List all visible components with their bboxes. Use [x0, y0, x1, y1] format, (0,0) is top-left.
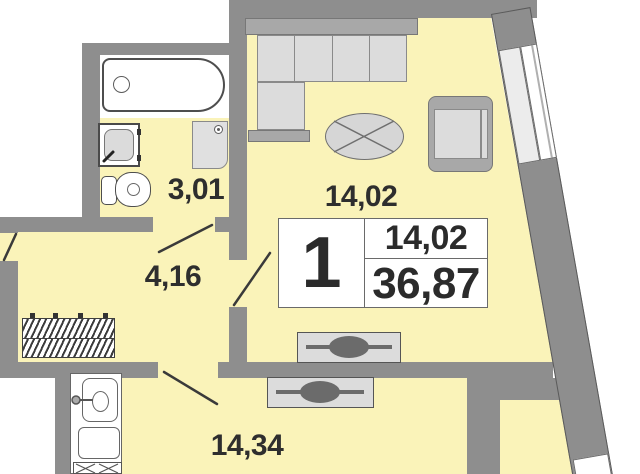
wardrobe-hatch-row	[23, 319, 114, 339]
balcony-window-icon	[573, 453, 616, 474]
wardrobe-hook-icon	[30, 313, 35, 318]
wardrobe-hangers-icon	[22, 318, 115, 358]
rooms-count: 1	[279, 219, 365, 307]
sofa-cushion	[370, 36, 406, 81]
wardrobe-hatch-row	[23, 339, 114, 358]
wall	[55, 373, 70, 474]
wall	[218, 362, 553, 378]
sofa-backrest-icon	[245, 18, 418, 35]
living-area-value: 14,02	[365, 219, 487, 259]
apartment-summary-box: 1 14,02 36,87	[278, 218, 488, 308]
armchair-backrest	[481, 109, 488, 159]
wall	[500, 378, 560, 400]
wardrobe-hook-icon	[103, 313, 108, 318]
total-area-value: 36,87	[365, 259, 487, 309]
bathtub-drain-icon	[113, 76, 130, 93]
wall	[82, 43, 232, 55]
sofa-armrest-icon	[248, 130, 310, 142]
entry-door-opening	[0, 233, 18, 261]
kitchen-door-opening	[158, 362, 218, 378]
kitchen-cabinet-icon	[78, 427, 120, 459]
living-room-area-label: 14,02	[325, 180, 398, 214]
hallway-area-label: 4,16	[145, 260, 201, 294]
living-room-door-opening	[229, 260, 247, 307]
wall	[215, 217, 247, 232]
kitchen-sink-bowl-icon	[92, 391, 109, 412]
washbasin-bracket-icon	[137, 129, 141, 135]
corner-sofa-icon	[257, 35, 407, 82]
washbasin-bowl-icon	[104, 129, 134, 161]
armchair-seat	[434, 109, 481, 159]
kitchen-area-label: 14,34	[211, 429, 284, 463]
bathroom-area-label: 3,01	[168, 173, 224, 207]
sofa-cushion	[333, 36, 370, 81]
wall	[229, 307, 247, 363]
vent-oval-icon	[300, 381, 340, 403]
toilet-drain-icon	[127, 183, 140, 196]
wall	[467, 378, 500, 474]
wall	[0, 217, 153, 232]
washing-machine-valve-dot-icon	[217, 128, 220, 131]
sofa-cushion	[258, 36, 295, 81]
floor-plan: 3,01 14,02 4,16 14,34 1 14,02 36,87	[0, 0, 640, 474]
wall	[0, 261, 18, 373]
vent-oval-icon	[329, 336, 369, 358]
sofa-corner-cushion	[257, 82, 305, 130]
stove-icon	[73, 462, 122, 474]
wall	[0, 217, 18, 233]
washbasin-bracket-icon	[137, 155, 141, 161]
wardrobe-hook-icon	[78, 313, 83, 318]
bathroom-door-opening	[153, 217, 215, 232]
oval-table-icon	[325, 113, 404, 160]
areas-column: 14,02 36,87	[365, 219, 487, 307]
sofa-cushion	[295, 36, 332, 81]
wardrobe-hook-icon	[53, 313, 58, 318]
